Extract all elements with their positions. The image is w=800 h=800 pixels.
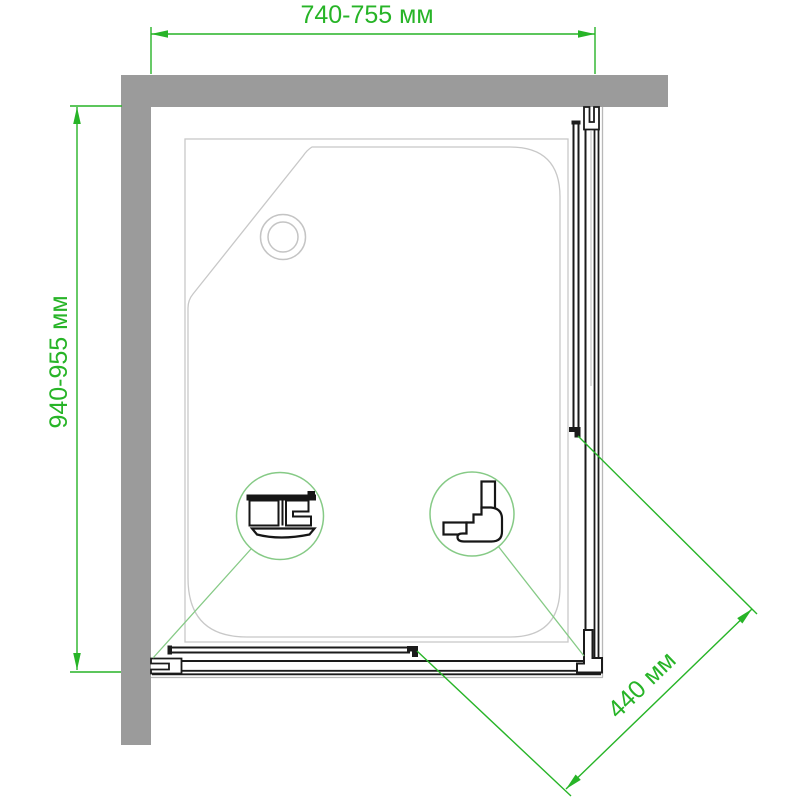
- tray-basin-outline: [188, 147, 560, 637]
- technical-drawing: [0, 0, 800, 800]
- bottom-door-handle: [407, 646, 418, 657]
- depth-dimension-label: 940-955 мм: [45, 287, 73, 437]
- tray-rim-outline: [185, 139, 568, 642]
- drawing-canvas: 740-755 мм 940-955 мм 440 мм: [0, 0, 800, 800]
- detail-callouts: [153, 472, 584, 658]
- wall-profile-section: [247, 491, 317, 538]
- door-dimension: [417, 436, 757, 796]
- right-sliding-panel: [569, 121, 581, 438]
- bottom-sliding-panel: [168, 646, 419, 658]
- width-dimension: [151, 27, 595, 74]
- leader-line-corner-profile: [498, 546, 584, 656]
- wall-profile-top: [584, 107, 599, 130]
- wall-profile-bottom: [151, 659, 182, 674]
- width-dimension-label: 740-755 мм: [297, 1, 437, 29]
- depth-dimension: [70, 106, 122, 672]
- corner-profile-section: [444, 482, 503, 542]
- right-door-assembly: [569, 107, 603, 678]
- drain-circle: [261, 215, 306, 260]
